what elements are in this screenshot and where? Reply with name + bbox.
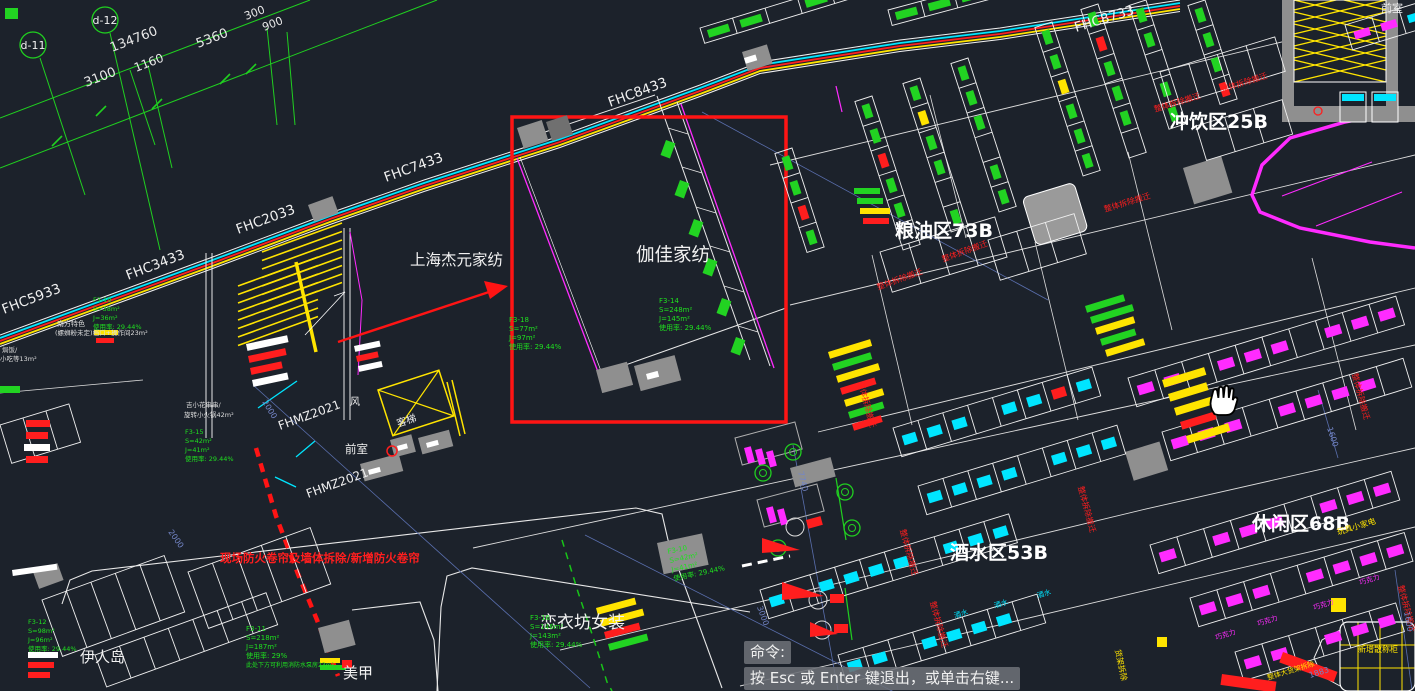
- dim-label: 1160: [132, 51, 166, 75]
- cad-circle: [837, 484, 853, 500]
- cad-line: [0, 0, 437, 168]
- cad-line: [1252, 108, 1415, 248]
- cad-line: [696, 207, 716, 213]
- shelf-category-tag: 酒水: [953, 607, 969, 620]
- area-annotation: J=36m²: [92, 314, 118, 322]
- cad-line: [447, 382, 460, 436]
- color-bar: [860, 208, 890, 214]
- color-bar: [250, 361, 283, 375]
- color-bar: [834, 624, 848, 633]
- color-bar: [26, 432, 48, 439]
- area-annotation: J=96m²: [27, 636, 53, 644]
- area-annotation: S=248m²: [659, 306, 692, 314]
- shelf-row: [760, 514, 1017, 619]
- cad-line: [305, 292, 345, 335]
- command-hint-text: 按 Esc 或 Enter 键退出，或单击右键...: [750, 669, 1014, 687]
- cad-polygon: [484, 281, 508, 299]
- cad-circle: [760, 470, 767, 477]
- grid-bubble-label: d-12: [93, 14, 118, 27]
- pan-hand-cursor: [1210, 386, 1237, 415]
- demolition-tag: 整体拆除搬迁: [1103, 190, 1152, 214]
- color-bar: [252, 373, 289, 387]
- color-bar: [248, 348, 287, 363]
- cad-polygon: [810, 622, 838, 637]
- area-annotation: F3-11: [246, 625, 266, 633]
- stair-hatch-line: [1294, 0, 1386, 10]
- cad-circle: [842, 489, 849, 496]
- cad-line: [275, 477, 296, 487]
- color-bar: [246, 335, 289, 351]
- zone-label: 冲饮区25B: [1170, 110, 1268, 133]
- color-bar: [717, 298, 732, 316]
- area-annotation: 此处下方可利用消防水泵房23m²: [246, 661, 334, 669]
- block-rect: [1183, 156, 1232, 204]
- stall-note: (螺蛳粉未定)档口+操作间23m²: [55, 328, 148, 337]
- cad-line: [724, 286, 744, 292]
- area-annotation: J=145m²: [658, 315, 690, 323]
- color-bar: [24, 444, 50, 451]
- color-bar: [731, 337, 746, 355]
- zone-label: 休闲区68B: [1251, 512, 1350, 535]
- area-annotation: S=218m²: [246, 634, 279, 642]
- area-annotation: F3-16: [530, 614, 550, 622]
- cad-line: [836, 86, 842, 112]
- stall-note: 小吃等13m²: [0, 354, 37, 363]
- area-annotation: S=38m²: [93, 305, 120, 313]
- cad-line: [1128, 152, 1172, 330]
- shelf-category-tag: 酒水: [1036, 587, 1052, 600]
- area-annotation: F3-14: [659, 297, 679, 305]
- cad-line: [296, 441, 315, 457]
- stair-step-line: [262, 249, 342, 278]
- cad-line: [1316, 192, 1402, 226]
- fire-curtain-note: 现场防火卷帘及墙体拆除/新增防火卷帘: [220, 551, 420, 565]
- area-annotation: S=77m²: [509, 325, 538, 333]
- stair-step-line: [262, 274, 342, 303]
- command-prompt[interactable]: 命令:: [744, 641, 791, 664]
- stair-step-line: [238, 308, 318, 337]
- cad-circle: [755, 465, 771, 481]
- grid-bubble-label: d-11: [21, 39, 46, 52]
- cad-line: [246, 64, 256, 74]
- cad-canvas[interactable]: d-11d-12134760536030090031001160FHC5933F…: [0, 0, 1415, 691]
- wall-band-line: [0, 12, 1180, 347]
- area-annotation: F3-19: [93, 296, 112, 304]
- command-hint: 按 Esc 或 Enter 键退出，或单击右键...: [744, 667, 1020, 690]
- area-annotation: 使用率: 29.44%: [185, 454, 234, 463]
- cad-line: [1282, 162, 1372, 196]
- new-fixture-tag: 货架拆除: [1113, 648, 1129, 681]
- zone-label: 粮油区73B: [895, 219, 993, 242]
- area-annotation: 使用率: 29%: [246, 651, 287, 660]
- dim-label-blue: 2000: [166, 528, 185, 550]
- cad-circle: [844, 520, 860, 536]
- command-prompt-text: 命令:: [750, 643, 785, 661]
- tenant-label: 伽佳家纺: [636, 245, 710, 266]
- color-bar: [96, 338, 114, 343]
- cad-line: [220, 74, 230, 84]
- stair-step-line: [262, 240, 342, 269]
- shelf-row: [700, 0, 900, 43]
- block-rect: [1125, 441, 1168, 480]
- cad-line: [710, 246, 730, 252]
- shelf-category-tag: 巧克力: [1214, 627, 1237, 642]
- cad-line: [738, 326, 758, 332]
- stall-note: 焗饭/: [2, 345, 18, 354]
- stall-note: 旋转小火锅42m²: [184, 410, 234, 419]
- cad-line: [600, 308, 786, 374]
- color-bar: [689, 219, 704, 237]
- shelf-row: [951, 58, 1016, 212]
- stall-note: 南方特色: [57, 319, 85, 328]
- shelf-row: [918, 425, 1126, 515]
- shelf-row: [888, 0, 1056, 25]
- color-bar: [806, 516, 823, 529]
- new-fixture-tag: 新增散称柜: [1358, 644, 1398, 654]
- stair-hatch-line: [1294, 0, 1386, 10]
- area-annotation: S=98m²: [28, 627, 55, 635]
- cad-line: [682, 167, 702, 173]
- color-bar: [744, 446, 755, 463]
- dim-label-blue: 2000: [260, 398, 278, 420]
- block-rect: [1386, 0, 1398, 122]
- color-bar: [830, 594, 844, 603]
- shelf-row: [893, 367, 1101, 457]
- wall-band-line: [0, 6, 1180, 341]
- cad-line: [96, 106, 106, 116]
- tenant-label: 美甲: [343, 664, 373, 682]
- area-annotation: F3-12: [28, 618, 47, 626]
- cad-line: [40, 58, 85, 195]
- outline-rect: [1294, 0, 1386, 82]
- area-annotation: S=42m²: [185, 437, 212, 445]
- block-rect: [318, 620, 356, 653]
- wall-band-line: [0, 9, 1180, 344]
- fire-shutter-label: FHMZ2021: [276, 397, 342, 432]
- color-bar: [854, 188, 880, 194]
- area-annotation: 使用率: 29.44%: [530, 640, 583, 649]
- dim-label: 3100: [82, 65, 118, 91]
- dim-label: 5360: [194, 26, 230, 52]
- shelf-category-tag: 酒水: [993, 597, 1009, 610]
- block-rect: [1282, 106, 1415, 122]
- demolition-tag: 整体拆除搬迁: [1220, 70, 1269, 94]
- cad-circle: [849, 525, 856, 532]
- color-bar: [28, 672, 50, 678]
- area-annotation: J=41m²: [184, 446, 210, 454]
- color-bar: [1374, 94, 1396, 101]
- demolition-tag: 整体拆除搬迁: [1076, 485, 1098, 534]
- area-annotation: 使用率: 29.44%: [509, 342, 562, 351]
- area-annotation: 使用率: 29.44%: [659, 323, 712, 332]
- area-annotation: J=97m²: [508, 334, 536, 342]
- color-bar: [358, 361, 383, 372]
- cad-line: [452, 380, 465, 434]
- stall-note: 吉小花串串/: [186, 400, 222, 409]
- drawing-viewport[interactable]: d-11d-12134760536030090031001160FHC5933F…: [0, 0, 1415, 691]
- area-annotation: J=187m²: [245, 643, 277, 651]
- area-annotation: S=146m²: [530, 623, 563, 631]
- cad-line: [267, 28, 277, 125]
- color-bar: [1157, 637, 1167, 647]
- block-rect: [1282, 0, 1294, 122]
- color-bar: [766, 450, 777, 467]
- color-bar: [1342, 94, 1364, 101]
- dim-label: 134760: [108, 24, 160, 56]
- color-bar: [675, 180, 690, 198]
- fire-shutter-label: FHC7433: [382, 150, 445, 186]
- cad-line: [287, 32, 295, 125]
- demolition-tag: 整体拆除搬迁: [898, 528, 920, 577]
- cad-circle: [786, 518, 804, 536]
- room-label: 风: [350, 396, 360, 408]
- color-bar: [5, 8, 18, 19]
- zone-label: 酒水区53B: [950, 542, 1048, 564]
- area-annotation: J=143m²: [529, 632, 561, 640]
- color-bar: [1180, 411, 1217, 429]
- dim-label-blue: 1600: [1325, 426, 1340, 448]
- fire-shutter-label: FHMZ2021: [304, 465, 370, 500]
- area-annotation: F3-15: [185, 428, 204, 436]
- block-rect: [546, 115, 573, 141]
- color-bar: [354, 341, 381, 352]
- color-bar: [26, 420, 50, 427]
- fire-shutter-label: FHC8733: [1072, 2, 1136, 35]
- color-bar: [857, 198, 883, 204]
- color-bar: [661, 140, 676, 158]
- block-rect: [596, 362, 633, 393]
- color-bar: [26, 456, 48, 463]
- color-bar: [766, 506, 777, 523]
- color-bar: [863, 218, 889, 224]
- area-annotation: F3-18: [509, 316, 529, 324]
- cad-line: [62, 508, 722, 688]
- color-bar: [0, 386, 20, 393]
- area-annotation: 使用率: 29.44%: [28, 644, 77, 653]
- cad-line: [350, 232, 362, 375]
- cad-line: [668, 128, 688, 134]
- demolition-tag: 整体拆除搬迁: [875, 266, 924, 292]
- fire-shutter-label: FHC5933: [0, 281, 63, 318]
- cad-line: [0, 380, 143, 393]
- cad-line: [742, 556, 790, 566]
- block-rect: [1022, 182, 1088, 246]
- color-bar: [28, 662, 54, 668]
- room-label: 前室: [345, 442, 368, 456]
- shelf-category-tag: 巧克力: [1256, 613, 1279, 628]
- cad-line: [130, 70, 155, 145]
- shelf-row: [42, 556, 185, 657]
- tenant-label: 伊人岛: [80, 648, 125, 666]
- tenant-label: 上海杰元家纺: [410, 251, 503, 269]
- color-bar: [755, 448, 766, 465]
- room-label: 前室: [1381, 1, 1403, 15]
- room-label: 客梯: [395, 411, 418, 430]
- dim-label-blue: 3000: [755, 605, 770, 627]
- cad-line: [148, 65, 172, 168]
- shelf-row: [775, 148, 824, 252]
- wall-band-line: [0, 3, 1180, 338]
